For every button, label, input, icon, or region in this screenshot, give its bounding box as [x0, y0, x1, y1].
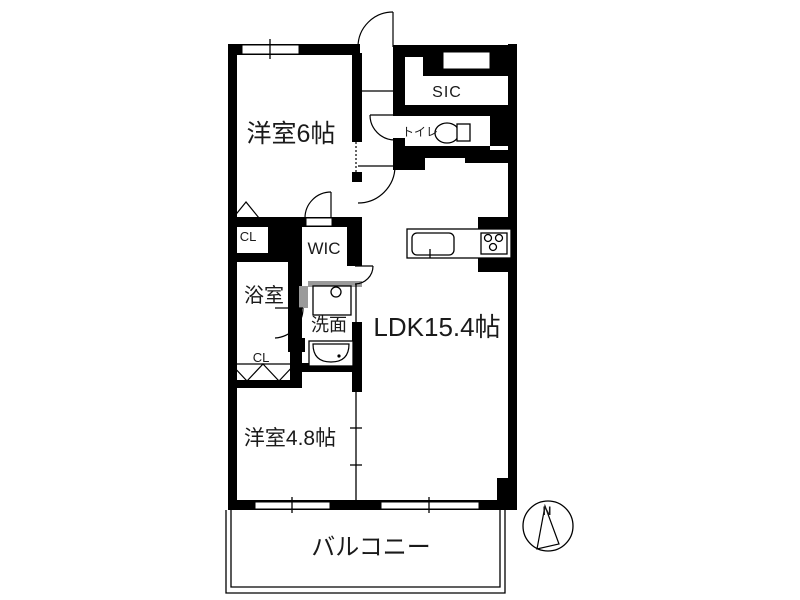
- room-label-closet-upper: CL: [240, 229, 257, 244]
- entrance-door-arc: [358, 12, 393, 47]
- room-label-sic: SIC: [432, 84, 462, 101]
- room-label-western-room-4-8: 洋室4.8帖: [244, 427, 336, 450]
- room-label-toilet: トイレ: [402, 125, 438, 139]
- wic-doorway: [306, 218, 332, 226]
- room-label-closet-lower: CL: [253, 350, 270, 365]
- room-label-balcony: バルコニー: [311, 534, 431, 561]
- toilet-icon: [435, 123, 470, 143]
- partition-lines: [350, 91, 393, 500]
- kitchen-counter-icon: [407, 229, 511, 258]
- floorplan-drawing: N 洋室6帖 SIC トイレ CL WIC 浴室 洗面 LDK15.4帖 CL …: [0, 0, 800, 600]
- toilet-door-arc: [370, 115, 395, 140]
- room-label-washroom: 洗面: [311, 315, 347, 335]
- sic-shelf: [443, 52, 490, 69]
- room-label-western-room-6: 洋室6帖: [247, 120, 336, 148]
- washing-machine-icon: [313, 286, 351, 315]
- room-label-wic: WIC: [307, 239, 340, 258]
- gas-stove-icon: [481, 233, 507, 254]
- floorplan-canvas: N 洋室6帖 SIC トイレ CL WIC 浴室 洗面 LDK15.4帖 CL …: [0, 0, 800, 600]
- room-label-ldk: LDK15.4帖: [373, 312, 500, 342]
- compass-north-label: N: [543, 504, 552, 518]
- room-label-bathroom: 浴室: [244, 284, 284, 307]
- ldk-door-arc: [358, 166, 395, 203]
- compass-icon: N: [523, 501, 573, 551]
- vanity-basin-icon: [309, 341, 353, 366]
- wic-door-arc: [305, 192, 331, 218]
